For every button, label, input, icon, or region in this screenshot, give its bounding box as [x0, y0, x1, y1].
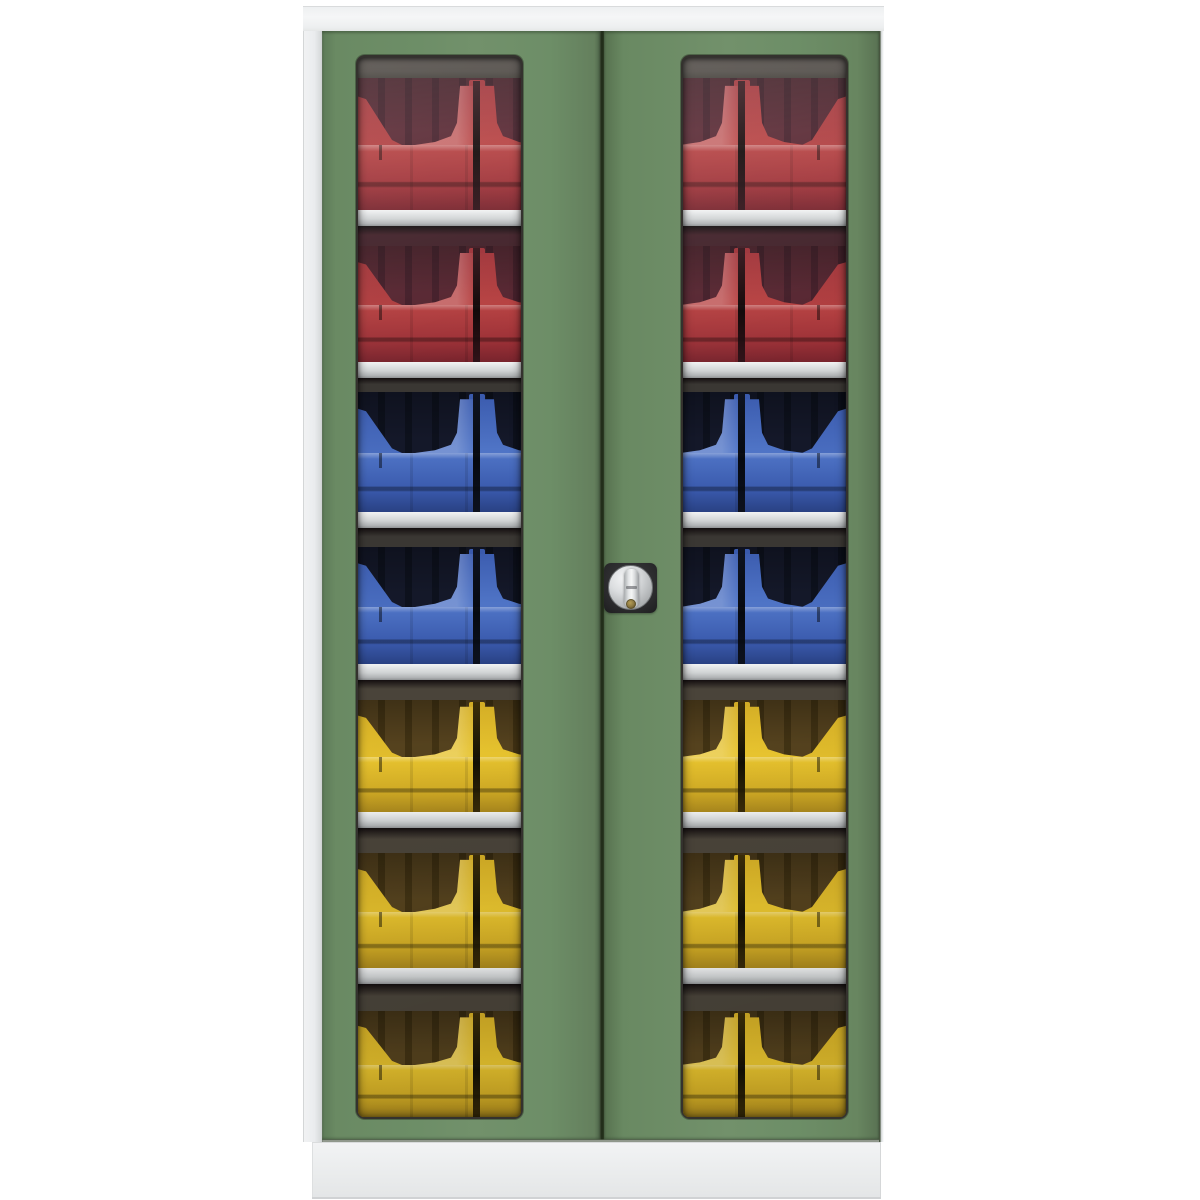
shelf-shadow [683, 528, 846, 547]
bin-compartment-yellow-7 [683, 1011, 846, 1117]
bin-gap [473, 248, 480, 362]
bin-gap [473, 855, 480, 968]
shelf [683, 362, 846, 378]
window-top-shadow [358, 57, 521, 78]
shelf [358, 512, 521, 528]
bin-seam [379, 1065, 382, 1080]
shelf-shadow [683, 828, 846, 853]
shelf-shadow [683, 984, 846, 1011]
keyhole-icon [626, 599, 636, 609]
bin-seam [817, 1065, 820, 1080]
bin-compartment-yellow-7 [358, 1011, 521, 1117]
bin-front-band [358, 912, 521, 968]
shelf-shadow [358, 226, 521, 246]
shelf-shadow [683, 378, 846, 392]
bin-compartment-blue-4 [358, 547, 521, 664]
bin-front-band [683, 912, 846, 968]
bin-front-band [683, 145, 846, 210]
bin-compartment-blue-3 [683, 392, 846, 512]
shelf [358, 664, 521, 680]
bin-seam [379, 912, 382, 927]
right-door-window-frame [681, 55, 848, 1119]
bin-gap [473, 549, 480, 664]
bin-seam [379, 453, 382, 468]
bin-compartment-red-1 [358, 78, 521, 210]
shelf-shadow [683, 680, 846, 700]
bin-seam [379, 607, 382, 622]
bin-compartment-yellow-5 [683, 700, 846, 812]
plinth [312, 1142, 881, 1199]
bin-seam [817, 305, 820, 320]
bin-seam [817, 607, 820, 622]
shelf-shadow [683, 226, 846, 246]
shelf [358, 362, 521, 378]
bin-gap [473, 702, 480, 812]
bin-front-band [358, 145, 521, 210]
shelf-shadow [358, 984, 521, 1011]
bin-compartment-blue-3 [358, 392, 521, 512]
cabinet-top-rail [303, 6, 884, 34]
bin-seam [817, 453, 820, 468]
cabinet-side-left [303, 31, 323, 1142]
bin-seam [379, 757, 382, 772]
left-door-window-frame [356, 55, 523, 1119]
shelf-shadow [358, 378, 521, 392]
shelf [358, 968, 521, 984]
lock-handle [604, 563, 657, 613]
bin-front-band [358, 757, 521, 812]
bin-seam [817, 145, 820, 160]
bin-compartment-blue-4 [683, 547, 846, 664]
bin-seam [379, 145, 382, 160]
right-door-window [683, 57, 846, 1117]
bin-compartment-red-2 [358, 246, 521, 362]
shelf [683, 968, 846, 984]
bin-gap [738, 855, 745, 968]
bin-front-band [683, 757, 846, 812]
bin-front-band [358, 305, 521, 362]
shelf-shadow [358, 680, 521, 700]
shelf [358, 812, 521, 828]
bin-gap [738, 549, 745, 664]
bin-compartment-red-1 [683, 78, 846, 210]
bin-front-band [358, 607, 521, 664]
shelf-shadow [358, 828, 521, 853]
lock-knob [608, 565, 653, 610]
shelf-shadow [358, 528, 521, 547]
left-door-window [358, 57, 521, 1117]
bin-gap [738, 81, 745, 210]
shelf [683, 812, 846, 828]
bin-compartment-red-2 [683, 246, 846, 362]
bin-gap [738, 1013, 745, 1117]
bin-seam [817, 757, 820, 772]
bin-front-band [358, 453, 521, 512]
shelf [358, 210, 521, 226]
window-top-shadow [683, 57, 846, 78]
bin-gap [473, 1013, 480, 1117]
bin-compartment-yellow-5 [358, 700, 521, 812]
bin-compartment-yellow-6 [358, 853, 521, 968]
cabinet-side-right [879, 31, 884, 1142]
bin-front-band [683, 305, 846, 362]
shelf [683, 512, 846, 528]
bin-gap [473, 81, 480, 210]
bin-front-band [683, 1065, 846, 1117]
bin-gap [738, 702, 745, 812]
lock-brand-text [626, 586, 637, 589]
bin-front-band [683, 607, 846, 664]
bin-front-band [683, 453, 846, 512]
bin-gap [738, 248, 745, 362]
shelf [683, 210, 846, 226]
shelf [683, 664, 846, 680]
bin-seam [817, 912, 820, 927]
bin-seam [379, 305, 382, 320]
bin-gap [738, 394, 745, 512]
product-photo [0, 0, 1200, 1200]
bin-front-band [358, 1065, 521, 1117]
bin-gap [473, 394, 480, 512]
bin-compartment-yellow-6 [683, 853, 846, 968]
